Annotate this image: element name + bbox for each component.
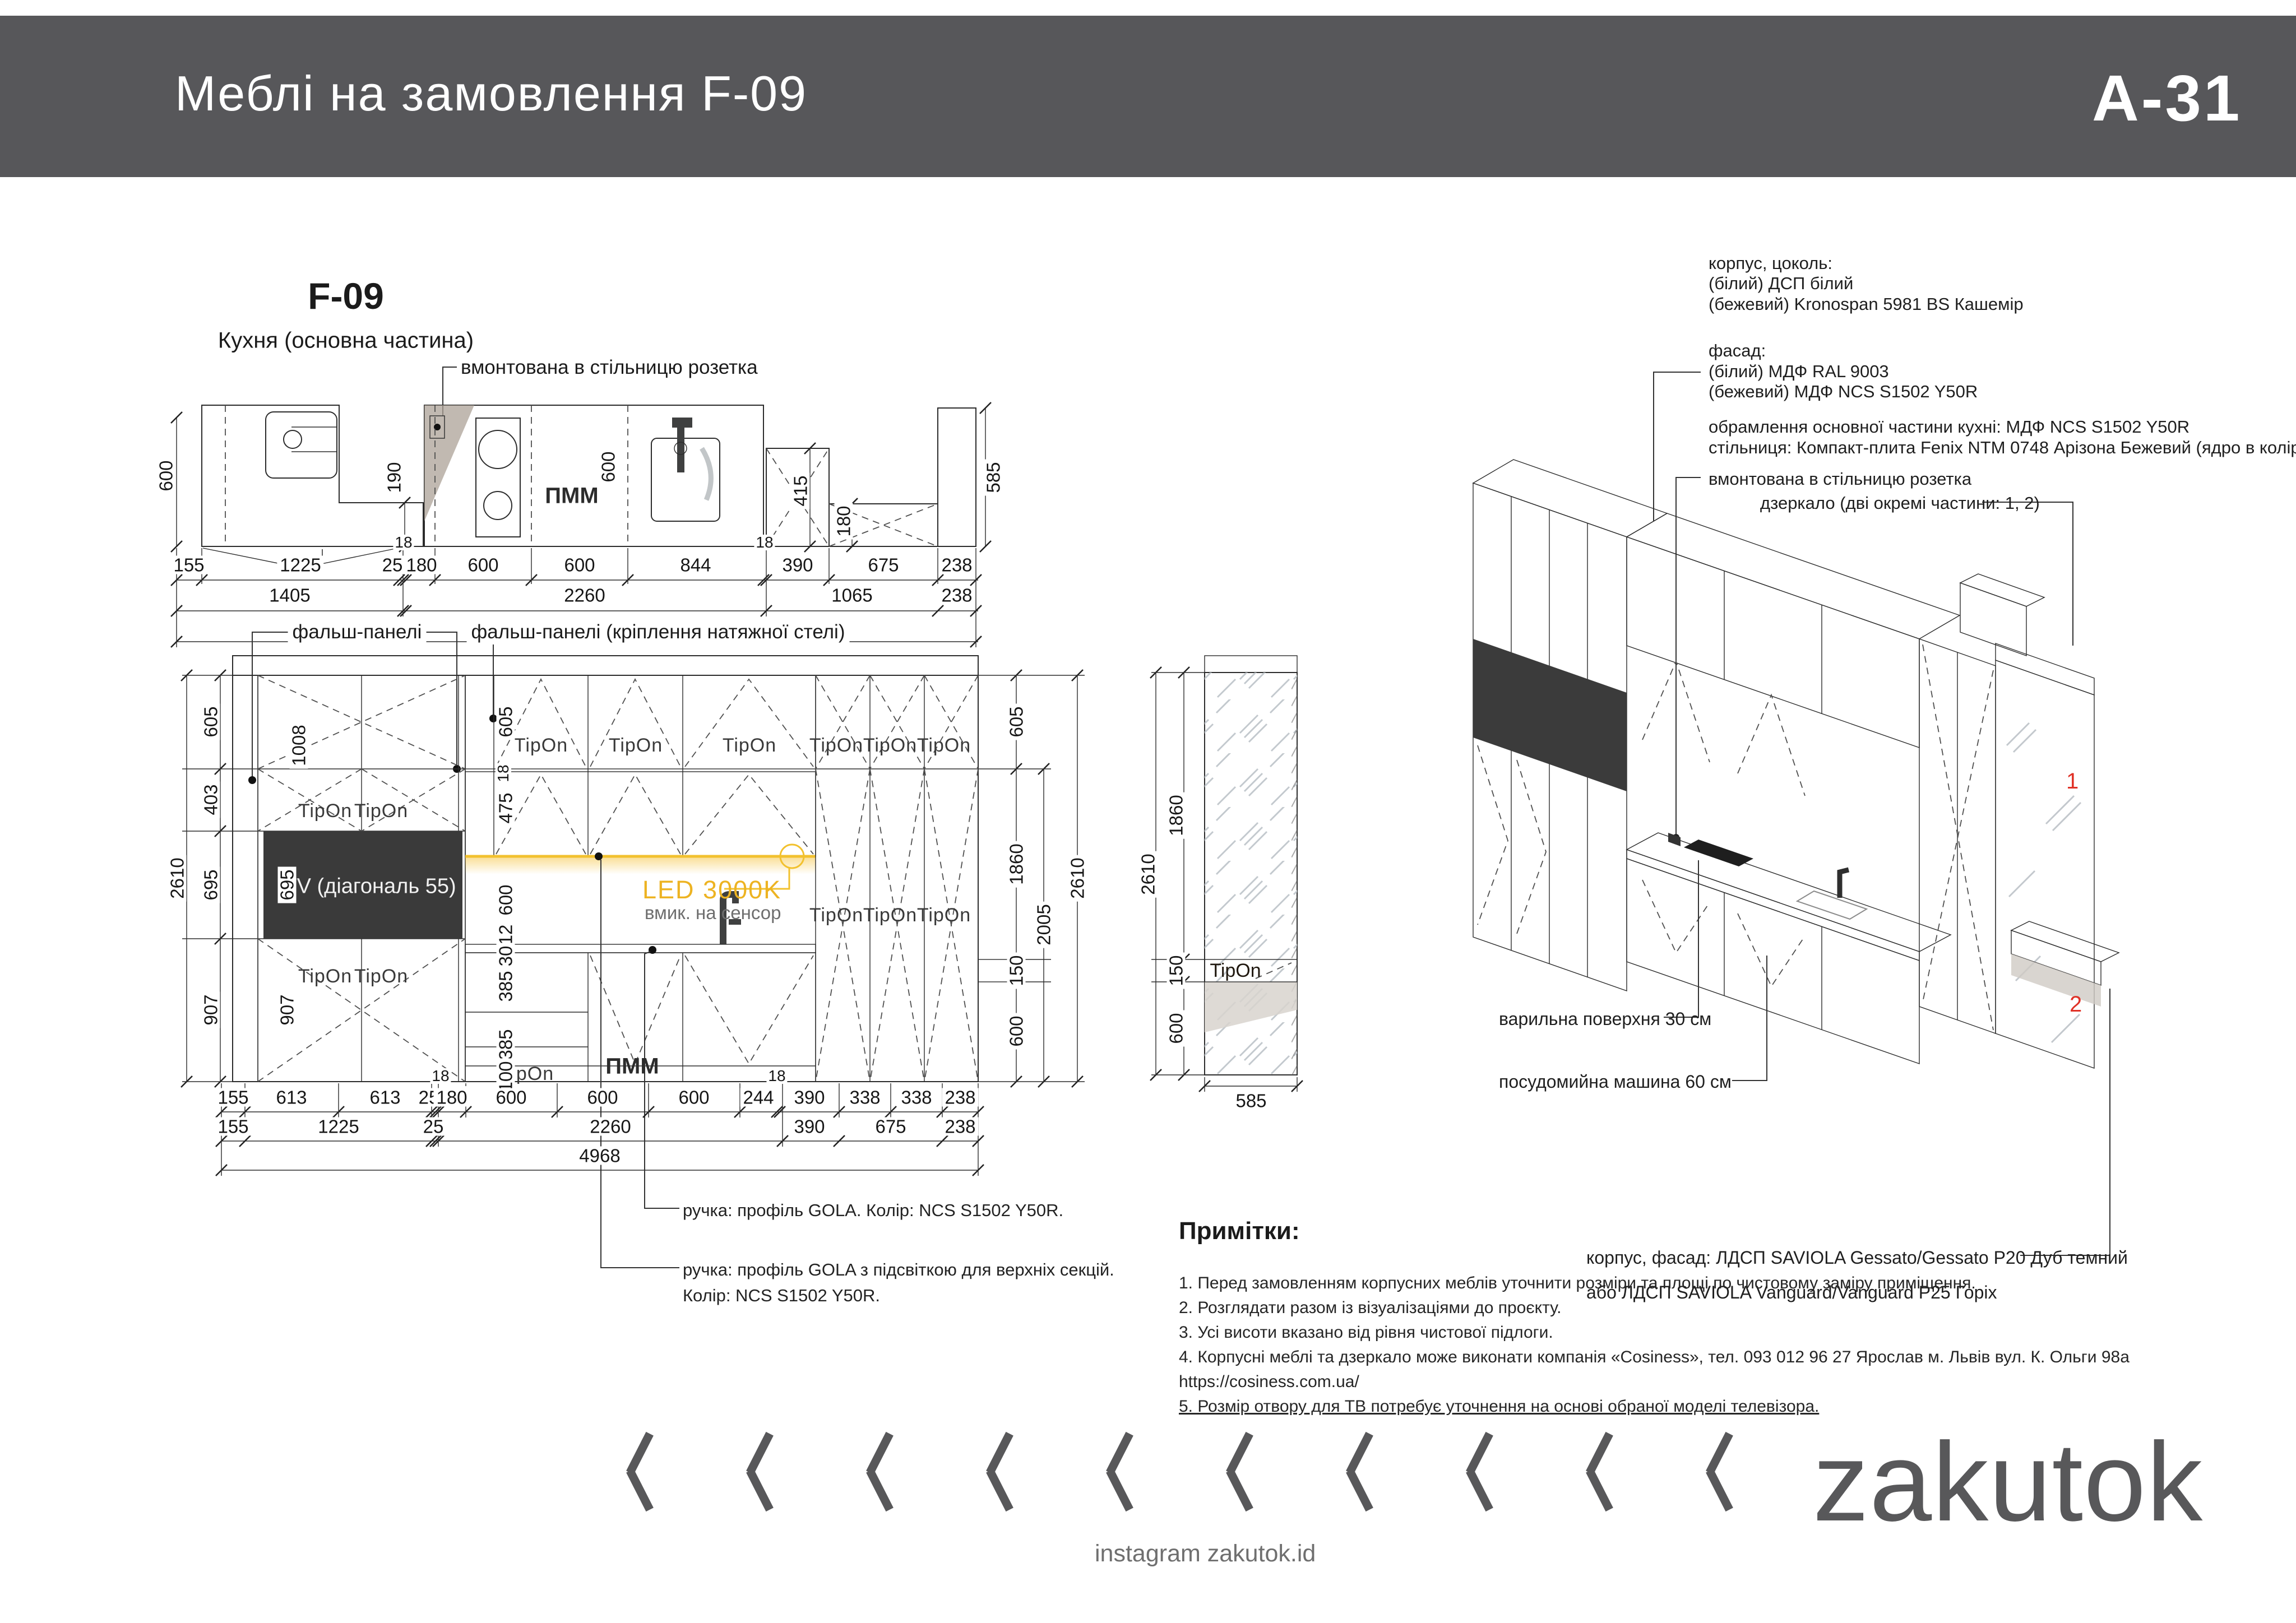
elevation-false-panel-strip (233, 656, 978, 675)
iso-base-cabinets (1627, 859, 1919, 1064)
false-panel-ceiling-label: фальш-панелі (кріплення натяжної стелі) (467, 620, 850, 644)
iso-sink (1797, 891, 1867, 919)
led-label: LED 3000K (642, 875, 781, 905)
spec-body-white: (білий) ДСП білий (1709, 273, 1853, 294)
led-sensor-label: вмик. на сенсор (645, 902, 781, 924)
iso-wood-box (1960, 583, 2026, 656)
spec-facade-beige: (бежевий) МДФ NCS S1502 Y50R (1709, 382, 1978, 402)
brand-logo: zakutok (1813, 1418, 2203, 1547)
iso-material-line1: корпус, фасад: ЛДСП SAVIOLA Gessato/Gess… (1586, 1248, 2128, 1268)
chevron-icon (1706, 1432, 1739, 1511)
chevron-icon (867, 1432, 899, 1511)
handle-note-1: ручка: профіль GOLA. Колір: NCS S1502 Y5… (683, 1200, 1063, 1221)
note-item: 3. Усі висоти вказано від рівня чистової… (1179, 1320, 2216, 1345)
mirror-marker-2: 2 (2070, 992, 2082, 1017)
mirror-marker-1: 1 (2066, 769, 2079, 794)
note-item: 1. Перед замовленням корпусних меблів ут… (1179, 1271, 2216, 1296)
handle-note-2b: Колір: NCS S1502 Y50R. (683, 1286, 880, 1306)
worktop-band (465, 944, 816, 953)
note-item: 4. Корпусні меблі та дзеркало може викон… (1179, 1345, 2216, 1394)
plan-wood-panel (938, 408, 976, 546)
spec-socket-line: вмонтована в стільницю розетка (1709, 469, 1971, 489)
notes-heading: Примітки: (1179, 1217, 1300, 1245)
chevron-icon (1346, 1432, 1379, 1511)
chevron-icon (1226, 1432, 1259, 1511)
brand-chevrons (627, 1432, 1826, 1511)
notes-list: 1. Перед замовленням корпусних меблів ут… (1179, 1271, 2216, 1419)
note-item: 5. Розмір отвору для ТВ потребує уточнен… (1179, 1394, 2216, 1419)
plan-subtitle: Кухня (основна частина) (218, 328, 474, 354)
chevron-icon (1466, 1432, 1499, 1511)
iso-hob-label: варильна поверхня 30 см (1499, 1009, 1711, 1030)
spec-frame-line: обрамлення основної частини кухні: МДФ N… (1709, 417, 2189, 437)
spec-facade-title: фасад: (1709, 341, 1766, 361)
elevation-dishwasher-label: ПММ (605, 1054, 659, 1079)
plan-dishwasher-label: ПММ (545, 484, 598, 509)
instagram-handle: instagram zakutok.id (1095, 1540, 1316, 1568)
elevation-view (181, 632, 1085, 1268)
iso-hob (1684, 840, 1753, 866)
elevation-false-panel-column (233, 675, 258, 1082)
iso-tv-niche (1473, 639, 1627, 791)
plan-sink-1 (266, 412, 337, 478)
chevron-icon (627, 1432, 659, 1511)
iso-dishwasher-label: посудомийна машина 60 см (1499, 1072, 1732, 1092)
plan-faucet-1 (284, 430, 302, 448)
spec-body-beige: (бежевий) Kronospan 5981 BS Кашемір (1709, 294, 2024, 314)
chevron-icon (1107, 1432, 1139, 1511)
spec-facade-white: (білий) МДФ RAL 9003 (1709, 361, 1889, 382)
iso-worktop (1627, 833, 1951, 952)
spec-mirror-line: дзеркало (дві окремі частини: 1, 2) (1760, 493, 2040, 513)
chevron-icon (747, 1432, 779, 1511)
upper-cabinets-row2 (465, 772, 816, 856)
chevron-icon (987, 1432, 1019, 1511)
drawing-sheet: { "theme": { "header_bg": "#57575a", "ac… (0, 0, 2296, 1623)
handle-note-2a: ручка: профіль GOLA з підсвіткою для вер… (683, 1260, 1114, 1280)
spec-worktop-line: стільниця: Компакт-плита Fenix NTM 0748 … (1709, 438, 2296, 458)
plan-socket-label: вмонтована в стільницю розетка (461, 356, 758, 379)
spec-body-title: корпус, цоколь: (1709, 253, 1832, 273)
plan-title: F-09 (308, 275, 384, 317)
tv-label: TV (діагональ 55) (284, 875, 456, 899)
note-item: 2. Розглядати разом із візуалізаціями до… (1179, 1296, 2216, 1320)
false-panel-label: фальш-панелі (288, 620, 427, 644)
iso-faucet (1840, 870, 1849, 898)
iso-upper-cabinets (1627, 537, 1919, 748)
chevron-icon (1586, 1432, 1619, 1511)
plan-faucet-2 (677, 418, 684, 472)
